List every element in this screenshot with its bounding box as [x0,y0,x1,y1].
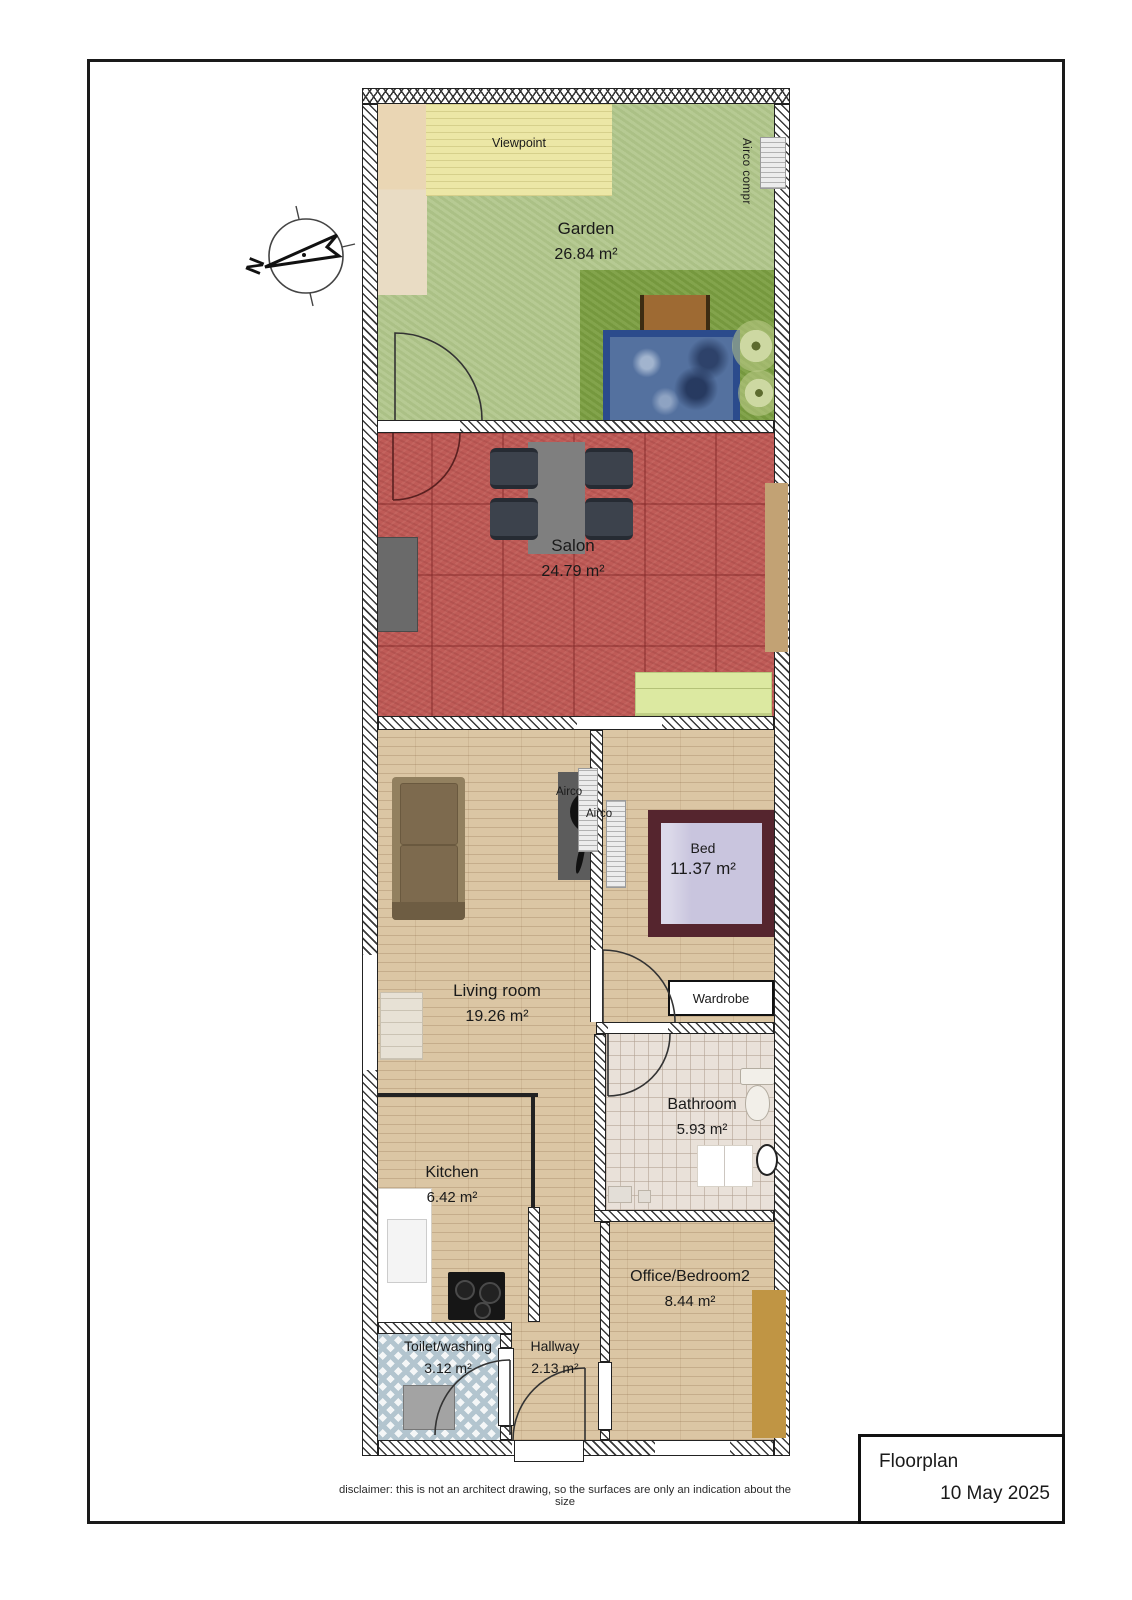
airco-label: Airco [586,808,612,820]
salon-chair [585,448,633,489]
door-opening-bathroom [608,1022,668,1034]
floorplan-page: N [0,0,1132,1600]
salon-chair [490,448,538,489]
wall-garden-top [362,88,790,104]
page-title: Floorplan [879,1451,958,1473]
salon-cabinet [375,537,418,632]
room-area: 5.93 m² [677,1121,728,1138]
room-area: 8.44 m² [665,1293,716,1310]
stove [448,1272,505,1320]
disclaimer-text: disclaimer: this is not an architect dra… [330,1484,800,1508]
viewpoint-label: Viewpoint [492,136,546,150]
room-area: 19.26 m² [465,1008,528,1026]
room-label-toilet: Toilet/washing 3.12 m² [404,1338,492,1376]
wardrobe: Wardrobe [668,980,774,1016]
salon-chair [585,498,633,540]
door-threshold-office [598,1362,612,1430]
bathroom-vanity [697,1145,753,1187]
wardrobe-label: Wardrobe [693,991,750,1006]
round-sink [756,1144,778,1176]
room-area: 6.42 m² [427,1189,478,1206]
wall-bathroom-office [594,1210,774,1222]
airco-compr-label: Airco compr [740,138,752,205]
window-office-bottom [655,1440,730,1456]
window-living-left [362,955,378,1070]
room-name: Bed [691,840,716,856]
compass-north-letter: N [240,254,269,278]
wall-toilet-right [500,1334,512,1348]
wall-kitchen-right [531,1093,535,1207]
kitchen-counter [378,1188,432,1334]
floorplan-drawing: Wardrobe [362,88,790,1458]
wall-kitchen-top [378,1093,538,1097]
room-name: Office/Bedroom2 [630,1268,750,1286]
room-area: 24.79 m² [541,563,604,581]
salon-chair [490,498,538,540]
garden-table [640,295,710,333]
wall-right [774,104,790,1456]
door-threshold-toilet [498,1348,514,1426]
living-room-sofa [392,777,465,920]
office-desk [752,1290,786,1438]
room-label-bed: Bed 11.37 m² [670,840,736,879]
plant-icon [732,320,780,372]
room-name: Garden [558,219,615,239]
wall-toilet-right-stub [500,1426,512,1440]
wall-kitchen-right-stub [528,1207,540,1322]
page-date: 10 May 2025 [940,1483,1050,1505]
room-label-office: Office/Bedroom2 8.44 m² [630,1268,750,1310]
wall-office-left [600,1222,610,1362]
room-area: 11.37 m² [670,859,736,879]
room-name: Hallway [530,1338,579,1354]
title-block: Floorplan 10 May 2025 [858,1434,1065,1524]
room-label-bathroom: Bathroom 5.93 m² [667,1096,736,1138]
hot-tub-pool [603,330,740,430]
wall-toilet-top [378,1322,512,1334]
room-label-kitchen: Kitchen 6.42 m² [425,1164,478,1206]
wall-salon-living [378,716,774,730]
salon-side-panel [765,483,788,652]
salon-sofa [635,672,772,716]
room-label-hallway: Hallway 2.13 m² [530,1338,579,1376]
room-name: Toilet/washing [404,1338,492,1354]
room-area: 3.12 m² [424,1360,471,1376]
living-room-sideboard [380,992,423,1060]
room-label-salon: Salon 24.79 m² [541,536,604,581]
kitchen-sink [387,1219,427,1283]
door-opening-garden [378,420,460,433]
toilet-tank [740,1068,775,1085]
washing-fixture [638,1190,651,1203]
room-label-living: Living room 19.26 m² [453,981,541,1026]
wall-office-left-stub [600,1430,610,1440]
washing-fixture [608,1186,632,1203]
room-area: 2.13 m² [531,1360,578,1376]
door-threshold-front [514,1440,584,1462]
room-name: Salon [551,536,594,556]
room-name: Bathroom [667,1096,736,1114]
toilet-bowl [745,1085,770,1121]
room-name: Kitchen [425,1164,478,1182]
room-name: Living room [453,981,541,1001]
airco-label: Airco [556,786,582,798]
washing-machine [403,1385,455,1430]
compass-north-icon: N [238,194,372,312]
airco-compressor-unit [760,137,786,189]
room-area: 26.84 m² [554,246,617,264]
room-label-garden: Garden 26.84 m² [554,219,617,264]
door-opening-salon-living [577,716,662,730]
door-opening-bedroom [590,950,603,1022]
wall-bathroom-left [594,1034,606,1222]
garden-terrace-strip [378,103,427,295]
